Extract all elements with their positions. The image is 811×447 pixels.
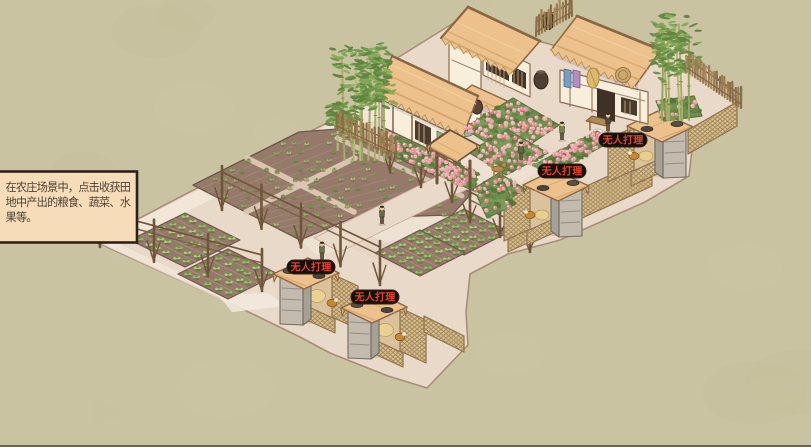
svg-text:果等。: 果等。 xyxy=(6,210,37,224)
svg-text:无人打理: 无人打理 xyxy=(602,134,644,147)
svg-text:无人打理: 无人打理 xyxy=(290,261,332,274)
svg-text:地中产出的粮食、蔬菜、水: 地中产出的粮食、蔬菜、水 xyxy=(6,195,131,209)
svg-text:无人打理: 无人打理 xyxy=(541,165,583,178)
svg-text:在农庄场景中，点击收获田: 在农庄场景中，点击收获田 xyxy=(6,180,131,194)
svg-text:无人打理: 无人打理 xyxy=(354,291,396,304)
